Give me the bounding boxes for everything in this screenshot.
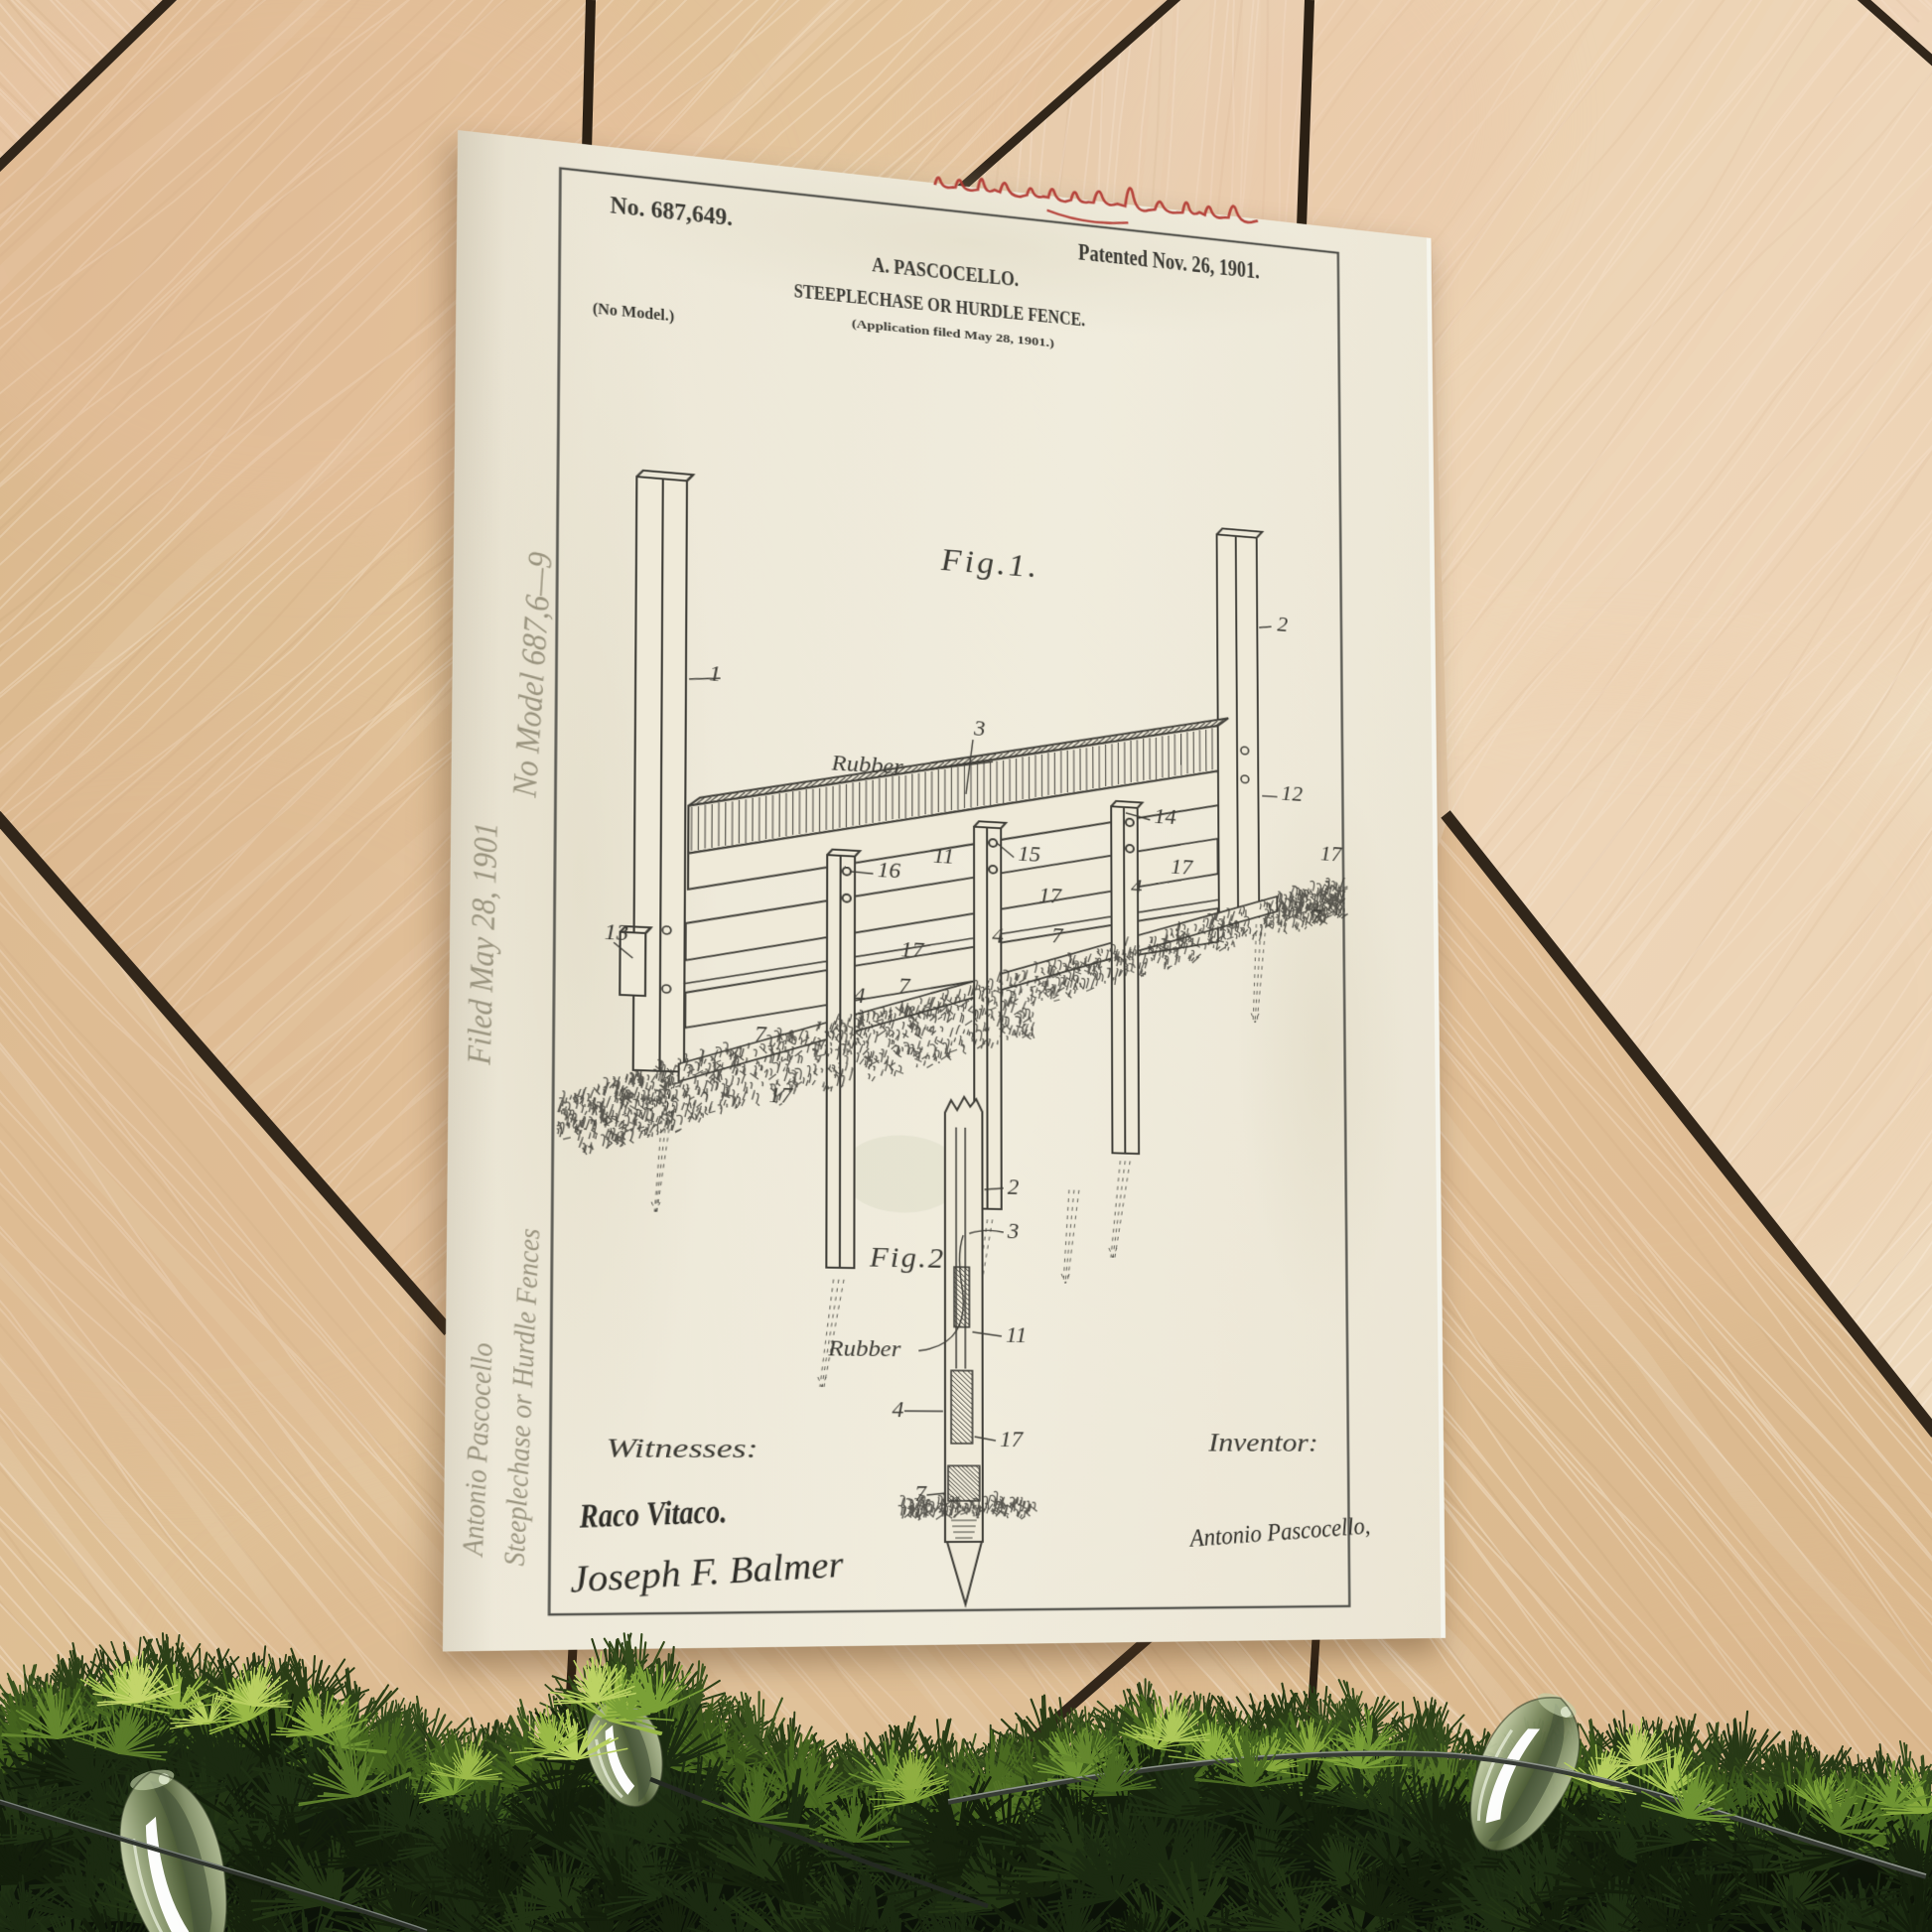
svg-text:11: 11 bbox=[933, 844, 955, 870]
svg-text:17: 17 bbox=[1000, 1427, 1024, 1451]
svg-text:15: 15 bbox=[1018, 842, 1040, 868]
svg-text:Raco Vitaco.: Raco Vitaco. bbox=[578, 1492, 728, 1536]
svg-text:17: 17 bbox=[900, 937, 924, 963]
svg-text:3: 3 bbox=[1007, 1219, 1020, 1244]
svg-text:14: 14 bbox=[1154, 804, 1175, 829]
svg-text:Rubber: Rubber bbox=[831, 751, 903, 779]
svg-text:13: 13 bbox=[604, 919, 628, 945]
svg-text:Rubber: Rubber bbox=[827, 1336, 900, 1362]
svg-text:7: 7 bbox=[1051, 923, 1063, 948]
svg-text:Witnesses:: Witnesses: bbox=[606, 1435, 758, 1464]
svg-text:Inventor:: Inventor: bbox=[1207, 1430, 1318, 1458]
svg-text:1: 1 bbox=[709, 661, 721, 687]
svg-text:7: 7 bbox=[898, 974, 911, 999]
svg-text:16: 16 bbox=[878, 858, 901, 884]
svg-text:Antonio Pascocello,: Antonio Pascocello, bbox=[1187, 1512, 1371, 1553]
svg-text:12: 12 bbox=[1281, 781, 1303, 806]
svg-text:4: 4 bbox=[892, 1397, 903, 1422]
svg-text:2: 2 bbox=[1277, 613, 1288, 636]
svg-text:3: 3 bbox=[973, 716, 986, 741]
svg-text:17: 17 bbox=[1171, 855, 1193, 880]
svg-text:Antonio Pascocello: Antonio Pascocello bbox=[457, 1342, 499, 1559]
svg-text:2: 2 bbox=[1008, 1174, 1020, 1199]
svg-text:7: 7 bbox=[755, 1022, 767, 1047]
svg-text:17: 17 bbox=[1320, 842, 1343, 867]
svg-text:Fig.1.: Fig.1. bbox=[940, 541, 1039, 585]
svg-text:Fig.2,: Fig.2, bbox=[869, 1240, 955, 1274]
svg-text:Filed May 28, 1901: Filed May 28, 1901 bbox=[461, 821, 505, 1066]
svg-text:4: 4 bbox=[854, 983, 866, 1008]
svg-text:17: 17 bbox=[1038, 884, 1062, 909]
svg-text:4: 4 bbox=[992, 923, 1004, 948]
svg-text:11: 11 bbox=[1006, 1322, 1028, 1347]
svg-text:4: 4 bbox=[1131, 875, 1142, 899]
